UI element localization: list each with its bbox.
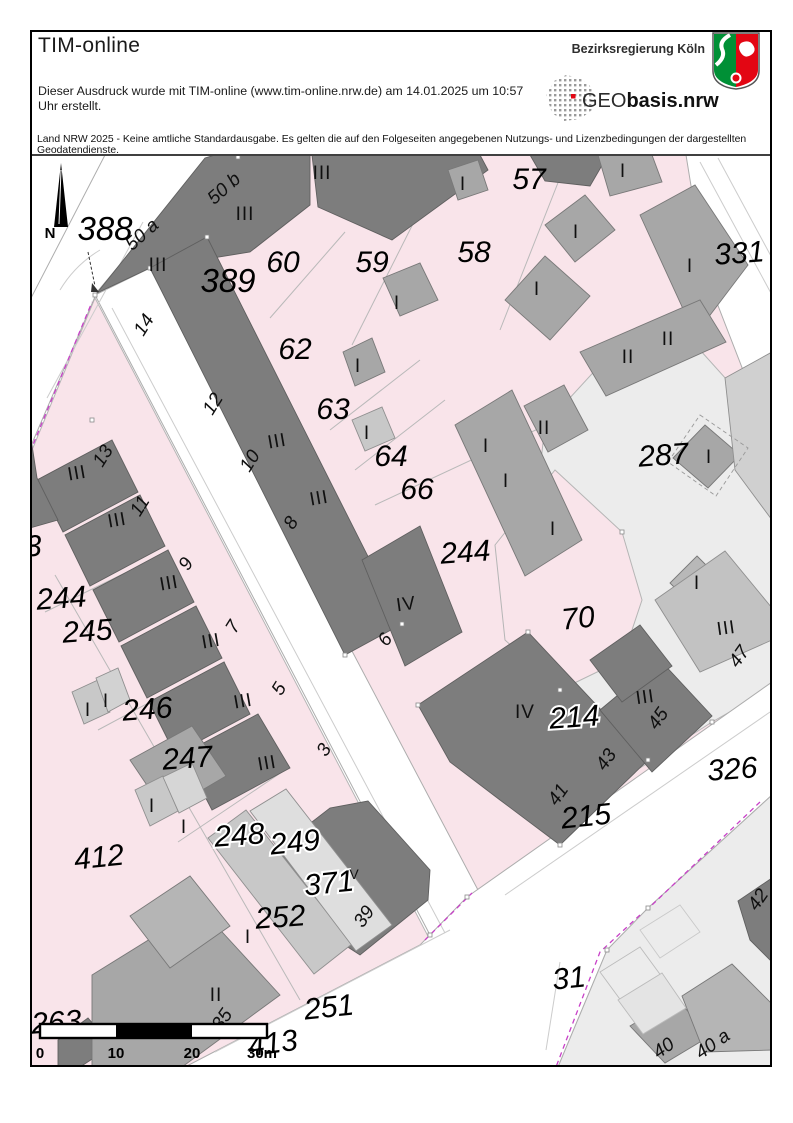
storey-count: I (706, 447, 712, 468)
storey-count: III (634, 686, 656, 709)
print-info: Dieser Ausdruck wurde mit TIM-online (ww… (38, 84, 558, 114)
scale-bar (40, 1024, 267, 1038)
parcel-number: 70 (560, 600, 597, 636)
print-page: 3883896059575833162636466287244244245702… (0, 0, 793, 1123)
storey-count: I (245, 927, 251, 948)
print-info-line1: Dieser Ausdruck wurde mit TIM-online (ww… (38, 84, 558, 99)
geobasis-logo-geo: GEO (582, 90, 626, 112)
page-title: TIM-online (38, 34, 140, 58)
parcel-number: 214 (547, 699, 600, 735)
scale-label: 30m (247, 1045, 277, 1062)
parcel-number: 62 (278, 333, 312, 366)
parcel-number: 58 (457, 236, 491, 269)
parcel-number: 248 (212, 817, 266, 854)
parcel-number: 60 (266, 246, 300, 279)
storey-count: II (210, 985, 223, 1006)
parcel-number: 326 (706, 751, 759, 787)
print-info-line2: Uhr erstellt. (38, 99, 558, 114)
storey-count: II (662, 329, 675, 350)
storey-count: I (503, 471, 509, 492)
parcel-number: 215 (558, 797, 613, 835)
storey-count: III (715, 617, 737, 640)
storey-count: III (266, 430, 288, 454)
storey-count: I (534, 279, 540, 300)
storey-count: III (106, 509, 128, 533)
parcel-number: 252 (253, 899, 307, 936)
storey-count: V (349, 866, 359, 882)
storey-count: I (460, 174, 466, 195)
storey-count: I (103, 691, 109, 712)
parcel-number: 249 (267, 823, 322, 861)
parcel-number: 59 (355, 246, 389, 279)
parcel-number: 389 (200, 262, 255, 299)
storey-count: I (687, 256, 693, 277)
storey-count: I (550, 519, 556, 540)
storey-count: III (236, 204, 255, 225)
storey-count: I (620, 161, 626, 182)
parcel-number: 245 (60, 613, 114, 650)
geobasis-logo: GEObasis.nrw (538, 68, 723, 122)
storey-count: I (364, 423, 370, 444)
storey-count: III (158, 572, 180, 596)
storey-count: I (394, 293, 400, 314)
parcel-number: 331 (713, 235, 765, 271)
parcel-number: 63 (316, 393, 350, 426)
parcel-number: 3 (24, 529, 43, 563)
disclaimer-text: Land NRW 2025 - Keine amtliche Standarda… (37, 134, 767, 156)
storey-count: III (66, 462, 88, 486)
storey-count: III (308, 487, 330, 511)
parcel-number: 244 (438, 534, 491, 570)
parcel-number: 412 (72, 838, 126, 876)
agency-name: Bezirksregierung Köln (500, 42, 705, 56)
storey-count: I (694, 573, 700, 594)
storey-count: IV (515, 702, 535, 723)
storey-count: III (313, 163, 332, 184)
parcel-number: 66 (400, 473, 434, 506)
storey-count: III (232, 690, 254, 714)
north-label: N (45, 225, 56, 242)
parcel-number: 247 (160, 740, 215, 777)
storey-count: I (85, 700, 91, 721)
storey-count: I (149, 796, 155, 817)
storey-count: II (622, 347, 635, 368)
storey-count: I (483, 436, 489, 457)
storey-count: IV (395, 593, 418, 617)
storey-count: I (181, 817, 187, 838)
geobasis-red-dot (571, 94, 576, 99)
parcel-number: 57 (512, 163, 547, 196)
parcel-number: 244 (34, 580, 87, 616)
scale-label: 10 (108, 1045, 125, 1062)
storey-count: II (538, 418, 551, 439)
parcel-number: 287 (636, 437, 691, 474)
storey-count: I (355, 356, 361, 377)
scale-label: 20 (184, 1045, 201, 1062)
parcel-number: 31 (551, 960, 588, 996)
storey-count: I (573, 222, 579, 243)
geobasis-logo-basis: basis.nrw (626, 90, 718, 112)
scale-label: 0 (36, 1045, 44, 1062)
storey-count: III (200, 630, 222, 654)
geobasis-logo-text: GEObasis.nrw (582, 90, 719, 113)
parcel-number: 251 (301, 989, 355, 1027)
parcel-number: 371 (302, 865, 355, 903)
parcel-number: 64 (374, 440, 407, 473)
map-canvas: 3883896059575833162636466287244244245702… (0, 0, 793, 1123)
map-content: 3883896059575833162636466287244244245702… (24, 155, 774, 1067)
storey-count: III (149, 255, 168, 276)
storey-count: III (256, 752, 278, 776)
parcel-number: 246 (120, 691, 174, 728)
